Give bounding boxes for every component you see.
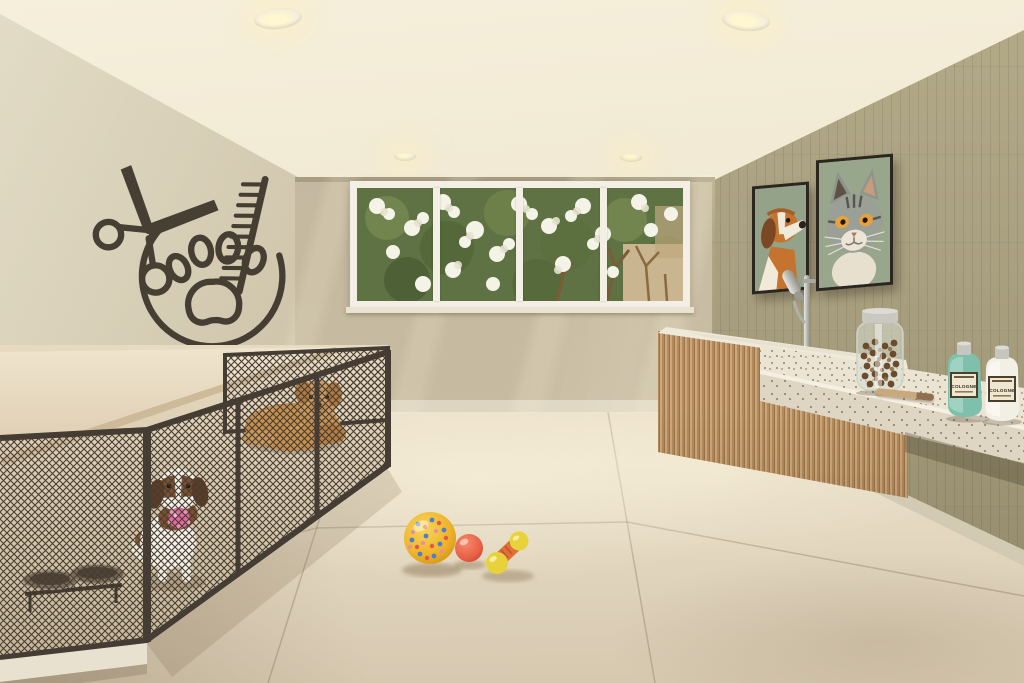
spotted-ball	[404, 512, 456, 564]
grooming-logo	[87, 153, 302, 358]
window-sill	[346, 307, 694, 313]
window-mullion	[516, 188, 523, 301]
fence-mesh	[0, 430, 147, 658]
paw-print-icon	[164, 231, 271, 325]
cologne-bottle-teal: COLOGNE	[948, 342, 982, 418]
floor-toys	[380, 490, 560, 600]
cologne-bottle-white: COLOGNE	[985, 346, 1019, 422]
kennel	[0, 330, 420, 683]
grooming-room-scene: COLOGNE COLOGNE	[0, 0, 1024, 683]
treat-jar	[850, 306, 910, 396]
window-mullion	[600, 188, 607, 301]
red-ball	[455, 534, 483, 562]
window	[350, 181, 690, 308]
cologne-label: COLOGNE	[951, 384, 976, 389]
cologne-bottles: COLOGNE COLOGNE	[940, 335, 1024, 427]
dumbbell-toy	[486, 532, 529, 575]
window-mullion	[433, 188, 440, 301]
cologne-label: COLOGNE	[989, 388, 1014, 393]
